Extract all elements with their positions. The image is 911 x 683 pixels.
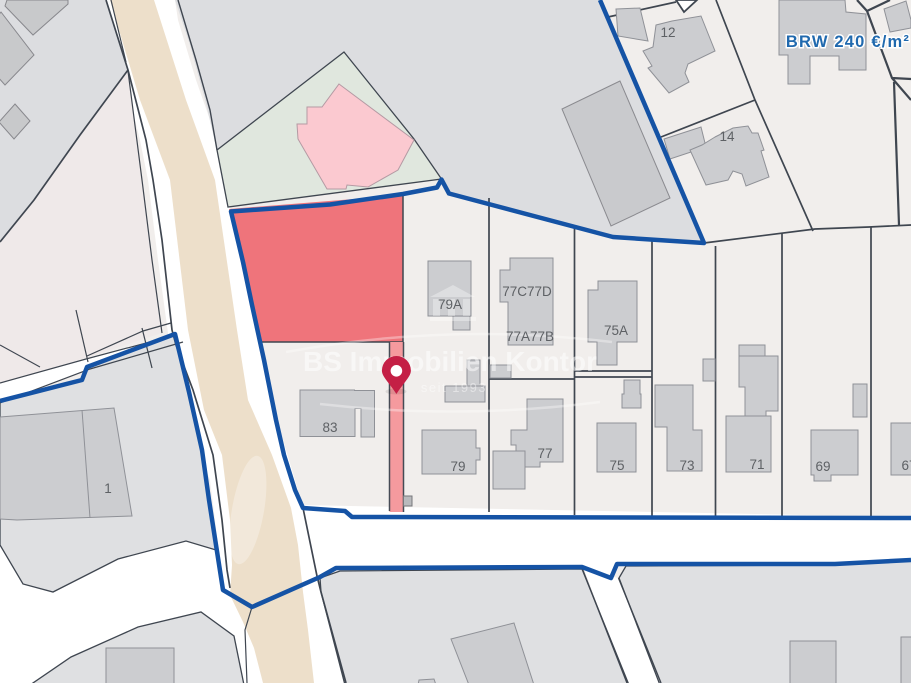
svg-text:BRW 240 €/m²: BRW 240 €/m²	[786, 33, 910, 51]
svg-text:69: 69	[815, 459, 830, 474]
svg-text:75: 75	[609, 458, 624, 473]
svg-text:seit 1993: seit 1993	[421, 380, 487, 395]
svg-text:14: 14	[719, 129, 735, 144]
svg-text:75A: 75A	[604, 323, 628, 338]
svg-text:BS Immobilien Kontor: BS Immobilien Kontor	[303, 346, 597, 377]
svg-text:12: 12	[660, 25, 675, 40]
svg-text:83: 83	[322, 420, 337, 435]
svg-text:77C77D: 77C77D	[502, 284, 552, 299]
svg-text:73: 73	[679, 458, 694, 473]
svg-text:79A: 79A	[438, 297, 462, 312]
svg-text:77A77B: 77A77B	[506, 329, 554, 344]
svg-text:67: 67	[901, 458, 911, 473]
svg-text:77: 77	[537, 446, 552, 461]
svg-text:71: 71	[749, 457, 764, 472]
svg-text:79: 79	[450, 459, 465, 474]
svg-text:1: 1	[104, 481, 112, 496]
